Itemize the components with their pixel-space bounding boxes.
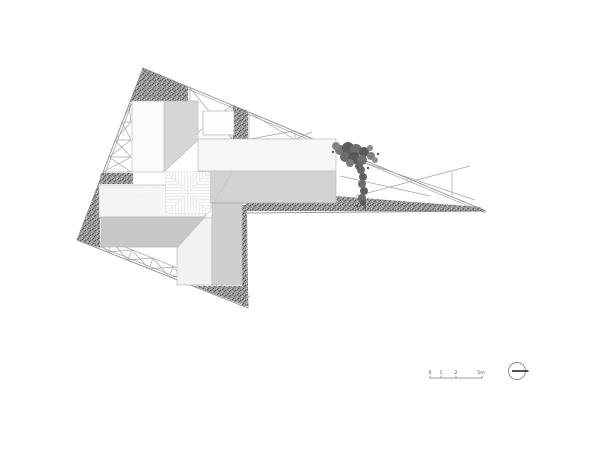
roof-plane-north-wing-west bbox=[132, 101, 164, 172]
roof-box bbox=[203, 111, 234, 135]
skylight-grid bbox=[166, 172, 210, 213]
scale-label-3: 5m bbox=[477, 370, 485, 376]
scale-label-1: 1 bbox=[440, 370, 443, 376]
roof-plane-south-wing-east bbox=[212, 203, 242, 285]
scale-label-0: 0 bbox=[429, 370, 432, 376]
scale-label-2: 2 bbox=[455, 370, 458, 376]
roof-plan-drawing: 0 1 2 5m bbox=[0, 0, 600, 450]
roof-plan-canvas: 0 1 2 5m bbox=[0, 0, 600, 450]
roof-plane-east-wing-north bbox=[198, 139, 336, 171]
roof-plane-east-wing-south bbox=[198, 171, 336, 203]
gravel-west-bar bbox=[99, 173, 133, 184]
